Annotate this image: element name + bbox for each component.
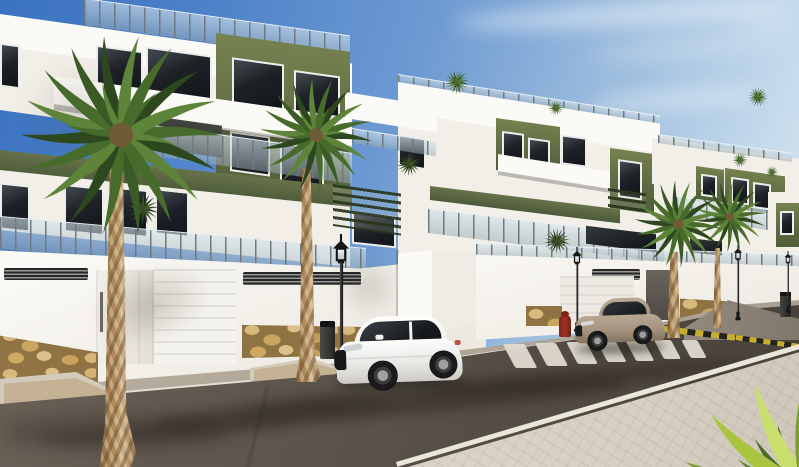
rooftop-palm <box>744 84 772 110</box>
palm-crown <box>0 2 260 268</box>
car-taillight <box>455 340 461 345</box>
car-grille <box>575 325 582 336</box>
cirrus-cloud <box>455 0 796 35</box>
window <box>561 134 587 168</box>
car-grille <box>334 350 347 370</box>
green-accent-panel <box>776 203 799 247</box>
lamp-glass <box>336 248 347 262</box>
balcony-plant <box>538 224 576 258</box>
corner-palm-plant <box>645 377 799 467</box>
palm-crown <box>620 166 736 282</box>
lamp-foot <box>786 310 791 313</box>
lamp-finial <box>788 251 789 254</box>
rooftop-palm <box>440 66 474 98</box>
lamp-pole <box>788 263 789 306</box>
beige-coupe <box>574 296 668 357</box>
lamp-finial <box>576 247 577 251</box>
car-mirror <box>375 335 383 340</box>
window <box>780 211 794 235</box>
lamp-pole <box>737 260 739 313</box>
lamp-finial <box>340 234 342 241</box>
stone-cladding <box>526 306 562 326</box>
cirrus-cloud <box>735 18 795 28</box>
lamp-foot <box>735 317 741 320</box>
street-lamp <box>784 251 793 314</box>
architectural-render-scene <box>0 0 799 467</box>
balcony-plant <box>392 148 426 180</box>
hydrant-cap <box>561 311 569 317</box>
fire-hydrant <box>559 315 571 337</box>
palm-crown <box>240 60 392 210</box>
rooftop-palm <box>545 98 567 118</box>
white-coupe <box>333 308 468 399</box>
cirrus-cloud <box>585 31 795 63</box>
